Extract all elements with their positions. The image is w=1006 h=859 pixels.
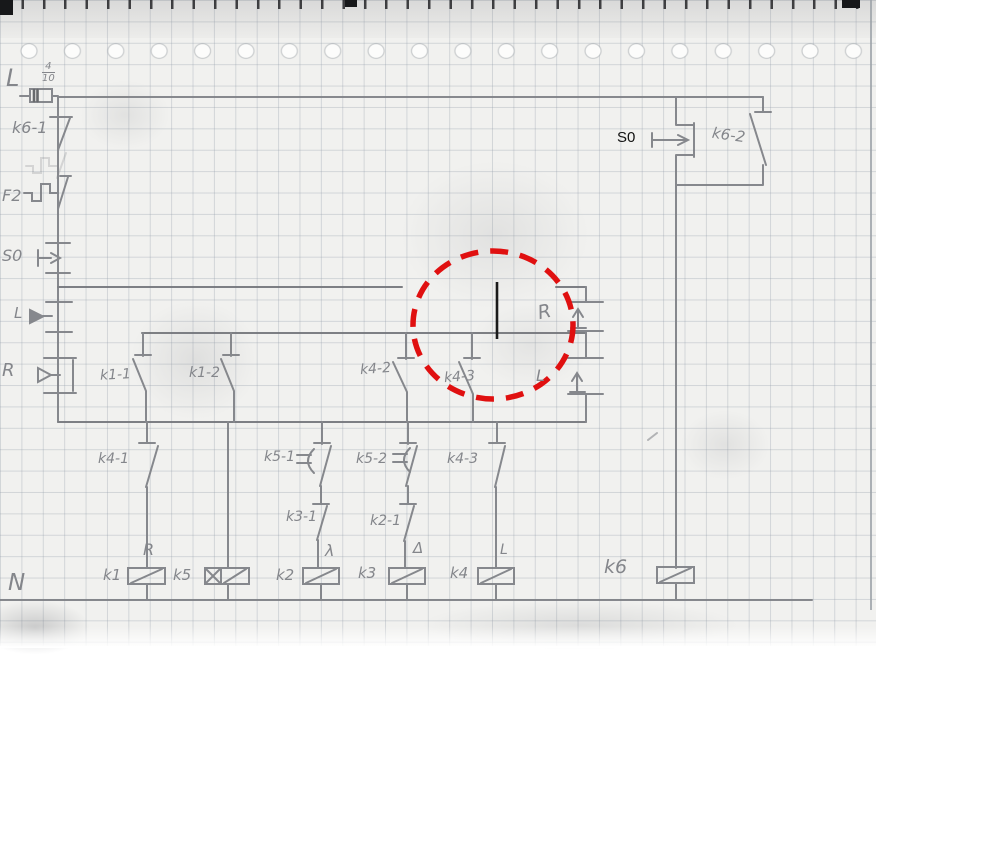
fuse-symbol [30,89,52,102]
contact-label-k5-1: k5-1 [264,450,295,464]
branch-k3 [389,422,425,600]
coil-tag-delta: Δ [413,541,423,556]
coil-tag-L: L [500,543,508,557]
overload-f2-symbol [24,153,71,209]
scanned-schematic-page: L 4 10 k6-1 F2 S0 L R k1-1 k1-2 k4-2 k4-… [0,0,1006,859]
fuse-rating-numerator: 4 [45,62,51,72]
stop-label-s0: S0 [2,248,22,264]
contact-k6-1 [50,117,72,150]
contact-label-k3-1: k3-1 [286,510,317,524]
typed-label-s0: S0 [617,130,635,145]
overload-label-f2: F2 [2,188,21,204]
neutral-label: N [8,572,25,595]
contact-label-k1-1: k1-1 [100,367,132,383]
coil-tag-star: λ [325,543,334,559]
contact-label-k4-3: k4-3 [444,369,476,385]
coil-tag-R: R [143,542,154,558]
stop-s0-contact [38,243,70,273]
contact-label-k4-2: k4-2 [360,361,392,377]
branch-k4 [478,422,514,600]
button-label-L: L [14,306,22,321]
contact-k1-2 [221,333,239,422]
contact-label-k1-2: k1-2 [189,366,220,380]
branch-k5 [205,422,249,600]
fuse-rating: 4 10 [42,62,55,84]
start-latch-block [652,97,771,568]
fuse-rating-denominator: 10 [42,72,55,84]
contact-label-k2-1: k2-1 [370,514,401,528]
branch-k6 [657,567,694,600]
button-L-contact [30,302,72,332]
branch-k1 [128,422,165,600]
coil-label-k3: k3 [358,566,376,581]
contact-k1-1 [133,333,151,422]
red-highlight-circle [413,251,573,399]
phase-label: L [6,66,19,90]
coil-label-k1: k1 [103,568,121,583]
right-button-label-L: L [536,368,545,384]
button-label-R: R [2,362,15,380]
contact-label-k6-1: k6-1 [12,120,47,136]
contact-label-k4-1: k4-1 [98,452,129,466]
contact-label-k6-2: k6-2 [711,126,746,145]
circuit-drawing [0,0,876,646]
stray-pencil-mark [648,433,657,440]
coil-label-k2: k2 [276,568,294,583]
coil-label-k6: k6 [604,558,627,577]
coil-label-k5: k5 [173,568,191,583]
contact-k4-2 [393,333,414,422]
contact-label-k4-3-lower: k4-3 [447,452,478,466]
contact-label-k5-2: k5-2 [356,452,387,466]
coil-label-k4: k4 [450,566,468,581]
